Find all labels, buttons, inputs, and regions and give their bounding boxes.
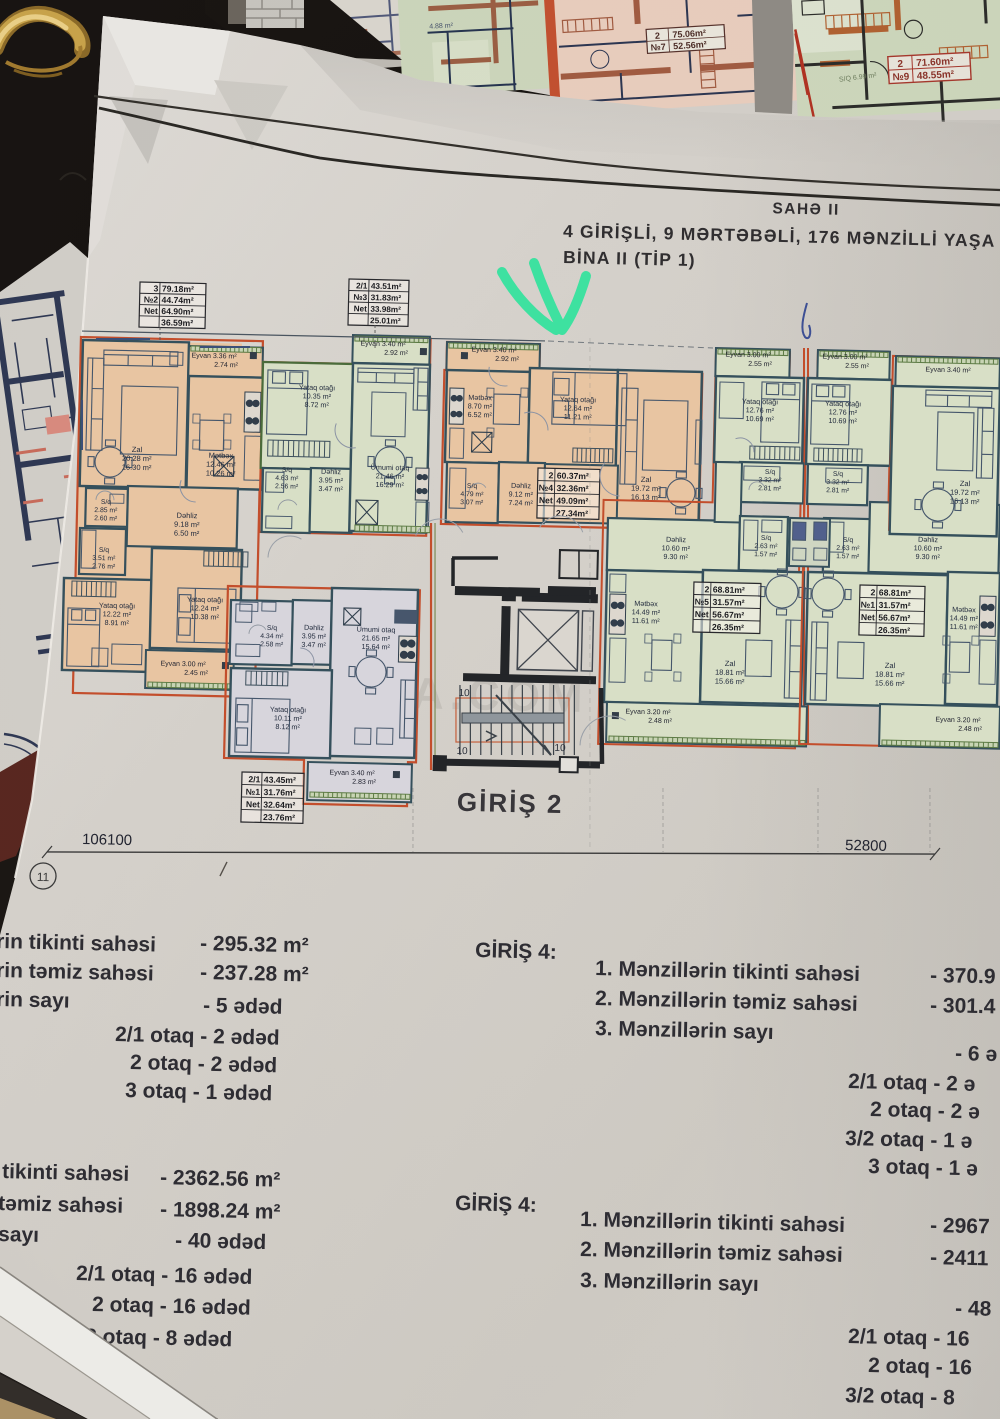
svg-text:Eyvan 3.00 m²: Eyvan 3.00 m² [160, 661, 206, 669]
svg-text:№1: №1 [246, 787, 261, 797]
svg-text:№4: №4 [539, 483, 554, 493]
svg-text:GİRİŞ 2: GİRİŞ 2 [457, 787, 564, 819]
svg-text:44.74m²: 44.74m² [162, 295, 194, 306]
svg-text:- 370.9: - 370.9 [930, 964, 996, 988]
svg-text:- 5 ədəd: - 5 ədəd [203, 994, 283, 1019]
svg-text:Net: Net [246, 799, 260, 809]
svg-text:- 295.32 m²: - 295.32 m² [200, 932, 309, 957]
svg-text:Net: Net [861, 612, 875, 622]
svg-text:Eyvan 3.20 m²: Eyvan 3.20 m² [935, 717, 981, 725]
svg-text:Mətbəx14.49 m²11.61 m²: Mətbəx14.49 m²11.61 m² [631, 599, 661, 626]
svg-text:2/1: 2/1 [356, 281, 368, 290]
svg-text:36.59m²: 36.59m² [161, 317, 193, 328]
svg-text:2.83 m²: 2.83 m² [352, 779, 377, 787]
svg-text:32.64m²: 32.64m² [263, 799, 295, 810]
svg-text:11: 11 [37, 870, 50, 884]
svg-text:Ümumi otaq21.46 m²16.29 m²: Ümumi otaq21.46 m²16.29 m² [370, 463, 409, 490]
svg-text:- 2967: - 2967 [930, 1214, 990, 1238]
svg-text:- 6 ə: - 6 ə [955, 1042, 998, 1066]
svg-text:Eyvan 3.40 m²: Eyvan 3.40 m² [360, 340, 406, 348]
svg-text:3: 3 [153, 283, 158, 293]
svg-text:rin sayı: rin sayı [0, 988, 70, 1013]
svg-text:10: 10 [458, 688, 470, 699]
svg-text:Dəhliz9.12 m²7.24 m²: Dəhliz9.12 m²7.24 m² [508, 481, 534, 508]
svg-text:- 2362.56 m²: - 2362.56 m² [160, 1166, 281, 1192]
svg-text:3. Mənzillərin sayı: 3. Mənzillərin sayı [580, 1269, 759, 1296]
svg-text:3 otaq - 1 ədəd: 3 otaq - 1 ədəd [125, 1079, 273, 1105]
svg-text:56.67m²: 56.67m² [878, 612, 910, 623]
svg-text:Mətbəx14.49 m²11.61 m²: Mətbəx14.49 m²11.61 m² [949, 605, 979, 632]
svg-text:Eyvan 3.00 m²: Eyvan 3.00 m² [822, 353, 868, 361]
svg-text:49.09m²: 49.09m² [556, 495, 588, 506]
svg-text:rin təmiz sahəsi: rin təmiz sahəsi [0, 959, 154, 986]
svg-text:2/1 otaq - 16: 2/1 otaq - 16 [848, 1325, 970, 1351]
svg-text:33.98m²: 33.98m² [370, 305, 401, 315]
svg-text:Net: Net [354, 304, 368, 313]
svg-text:2: 2 [548, 470, 553, 480]
svg-text:tikinti sahəsi: tikinti sahəsi [2, 1160, 130, 1186]
svg-text:56.67m²: 56.67m² [712, 609, 744, 620]
svg-text:2.92 m²: 2.92 m² [384, 350, 409, 358]
svg-text:2.48 m²: 2.48 m² [648, 718, 673, 726]
svg-text:Yataq otağı12.76 m²10.69 m²: Yataq otağı12.76 m²10.69 m² [824, 399, 861, 426]
svg-text:Net: Net [695, 609, 709, 619]
svg-text:2/1 otaq - 16 ədəd: 2/1 otaq - 16 ədəd [76, 1262, 253, 1289]
svg-text:2.55 m²: 2.55 m² [845, 363, 870, 371]
svg-text:31.76m²: 31.76m² [263, 787, 295, 798]
svg-text:rin tikinti sahəsi: rin tikinti sahəsi [0, 930, 156, 957]
svg-text:23.76m²: 23.76m² [263, 812, 295, 823]
svg-text:Mətbəx12.46 m²10.26 m²: Mətbəx12.46 m²10.26 m² [206, 451, 237, 478]
svg-text:- 301.4: - 301.4 [930, 994, 996, 1018]
svg-text:Dəhliz3.95 m²3.47 m²: Dəhliz3.95 m²3.47 m² [318, 467, 344, 494]
svg-text:43.51m²: 43.51m² [371, 282, 402, 292]
svg-text:106100: 106100 [82, 831, 132, 849]
svg-text:31.57m²: 31.57m² [712, 597, 744, 608]
svg-text:25.01m²: 25.01m² [370, 316, 401, 326]
svg-text:2: 2 [870, 587, 875, 597]
svg-text:2/1 otaq - 2 ə: 2/1 otaq - 2 ə [848, 1070, 976, 1096]
svg-text:№3: №3 [353, 293, 367, 302]
svg-text:Eyvan 3.00 m²: Eyvan 3.00 m² [725, 351, 771, 359]
svg-text:68.81m²: 68.81m² [713, 584, 745, 595]
svg-text:- 48: - 48 [955, 1297, 992, 1321]
svg-text:3/2 otaq - 1 ə: 3/2 otaq - 1 ə [845, 1127, 973, 1153]
svg-text:32.36m²: 32.36m² [556, 483, 588, 494]
svg-text:2.92 m²: 2.92 m² [495, 356, 520, 364]
svg-text:2.74 m²: 2.74 m² [214, 362, 239, 370]
svg-text:10: 10 [554, 743, 566, 754]
svg-text:31.57m²: 31.57m² [878, 600, 910, 611]
svg-text:- 2411: - 2411 [930, 1246, 989, 1270]
svg-text:Net: Net [539, 495, 553, 505]
svg-text:SAHƏ II: SAHƏ II [772, 200, 840, 219]
svg-text:26.35m²: 26.35m² [878, 625, 910, 636]
svg-text:- 237.28 m²: - 237.28 m² [200, 961, 309, 986]
svg-text:2: 2 [704, 584, 709, 594]
svg-text:Dəhliz3.95 m²3.47 m²: Dəhliz3.95 m²3.47 m² [301, 623, 327, 650]
svg-text:Net: Net [144, 306, 158, 316]
svg-text:GİRİŞ 4:: GİRİŞ 4: [475, 939, 557, 964]
svg-text:64.90m²: 64.90m² [161, 306, 193, 317]
svg-text:- 40 ədəd: - 40 ədəd [175, 1229, 267, 1254]
svg-text:2/1 otaq - 2 ədəd: 2/1 otaq - 2 ədəd [115, 1023, 280, 1050]
svg-text:№2: №2 [144, 294, 159, 304]
svg-text:Eyvan 3.36 m²: Eyvan 3.36 m² [191, 353, 237, 361]
svg-text:təmiz sahəsi: təmiz sahəsi [0, 1192, 123, 1218]
svg-text:2.48 m²: 2.48 m² [958, 726, 983, 734]
svg-text:3 otaq - 1 ə: 3 otaq - 1 ə [868, 1155, 978, 1180]
svg-text:Yataq otağı12.64 m²11.21 m²: Yataq otağı12.64 m²11.21 m² [559, 395, 596, 422]
svg-text:68.81m²: 68.81m² [879, 587, 911, 598]
svg-text:79.18m²: 79.18m² [162, 284, 194, 295]
svg-text:Yataq otağı12.24 m²10.38 m²: Yataq otağı12.24 m²10.38 m² [186, 595, 223, 622]
svg-text:GİRİŞ 4:: GİRİŞ 4: [455, 1192, 537, 1217]
svg-text:3/2 otaq - 8: 3/2 otaq - 8 [845, 1384, 956, 1409]
svg-text:2 otaq - 16 ədəd: 2 otaq - 16 ədəd [92, 1293, 251, 1320]
svg-text:52800: 52800 [845, 837, 887, 855]
svg-text:№5: №5 [695, 597, 710, 607]
svg-text:31.83m²: 31.83m² [371, 293, 402, 303]
svg-text:Eyvan 3.40 m²: Eyvan 3.40 m² [329, 769, 375, 777]
svg-text:Eyvan 3.40 m²: Eyvan 3.40 m² [471, 346, 517, 354]
svg-text:2.45 m²: 2.45 m² [184, 670, 209, 678]
svg-text:2 otaq - 2 ə: 2 otaq - 2 ə [870, 1098, 980, 1123]
svg-text:2/1: 2/1 [248, 774, 260, 784]
svg-text:2.55 m²: 2.55 m² [748, 361, 773, 369]
svg-text:60.37m²: 60.37m² [557, 470, 589, 481]
svg-text:27.34m²: 27.34m² [556, 508, 588, 519]
svg-text:Ümumi otaq21.65 m²15.64 m²: Ümumi otaq21.65 m²15.64 m² [356, 625, 395, 652]
svg-text:2 otaq - 16: 2 otaq - 16 [868, 1354, 972, 1379]
svg-text:BİNA II (TİP 1): BİNA II (TİP 1) [563, 247, 696, 270]
svg-text:Eyvan 3.40 m²: Eyvan 3.40 m² [925, 366, 971, 374]
svg-text:sayı: sayı [0, 1223, 39, 1247]
svg-text:3. Mənzillərin sayı: 3. Mənzillərin sayı [595, 1017, 774, 1044]
svg-text:- 1898.24 m²: - 1898.24 m² [160, 1198, 281, 1224]
svg-text:2 otaq - 2 ədəd: 2 otaq - 2 ədəd [130, 1051, 278, 1077]
svg-text:26.35m²: 26.35m² [712, 622, 744, 633]
svg-text:Dəhliz9.18 m²6.50 m²: Dəhliz9.18 m²6.50 m² [174, 511, 201, 538]
svg-text:10: 10 [456, 746, 468, 757]
svg-text:Yataq otağı12.76 m²10.69 m²: Yataq otağı12.76 m²10.69 m² [741, 397, 778, 424]
svg-text:№1: №1 [861, 599, 876, 609]
svg-text:Eyvan 3.20 m²: Eyvan 3.20 m² [625, 708, 671, 716]
svg-text:Mətbəx8.70 m²6.52 m²: Mətbəx8.70 m²6.52 m² [467, 393, 493, 420]
svg-text:43.45m²: 43.45m² [264, 774, 296, 785]
